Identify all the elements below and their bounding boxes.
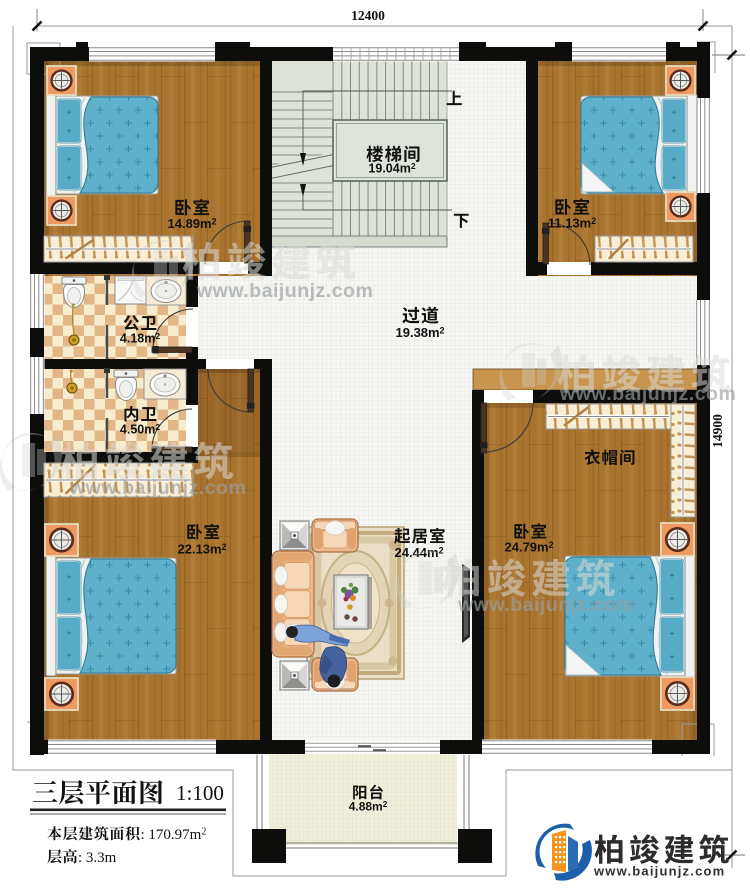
svg-text:: 3.3m: : 3.3m — [78, 850, 117, 866]
svg-text:www.baijunjz.com: www.baijunjz.com — [457, 594, 634, 616]
svg-text:: 170.97m2: : 170.97m2 — [141, 827, 207, 844]
svg-text:24.79m2: 24.79m2 — [505, 540, 554, 555]
svg-text:4.50m2: 4.50m2 — [120, 422, 160, 437]
svg-text:11.13m2: 11.13m2 — [548, 216, 596, 231]
svg-text:14900: 14900 — [710, 414, 725, 448]
svg-text:19.38m2: 19.38m2 — [396, 325, 445, 340]
svg-text:19.04m2: 19.04m2 — [368, 161, 415, 176]
svg-text:12400: 12400 — [351, 8, 385, 23]
svg-text:22.13m2: 22.13m2 — [178, 542, 227, 557]
svg-text:www.baijunjz.com: www.baijunjz.com — [196, 280, 373, 302]
svg-text:4.18m2: 4.18m2 — [120, 331, 160, 346]
svg-text:1:100: 1:100 — [176, 781, 224, 805]
svg-text:14.89m2: 14.89m2 — [168, 216, 217, 231]
svg-text:4.88m2: 4.88m2 — [349, 800, 388, 814]
svg-text:www.baijunjz.com: www.baijunjz.com — [69, 477, 246, 499]
svg-text:www.baijunjz.com: www.baijunjz.com — [593, 864, 725, 879]
svg-text:www.baijunjz.com: www.baijunjz.com — [559, 383, 736, 405]
